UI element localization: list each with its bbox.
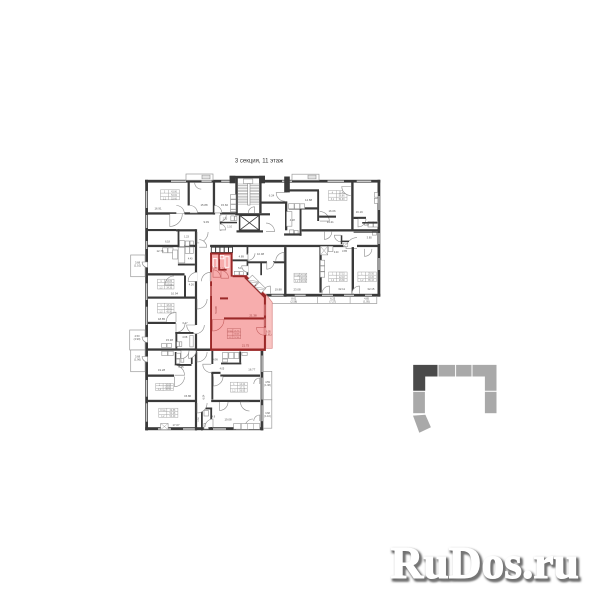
svg-text:53.66: 53.66 [171, 198, 177, 200]
svg-text:14.24: 14.24 [239, 384, 245, 386]
svg-text:4.68: 4.68 [182, 335, 188, 339]
svg-text:18.85: 18.85 [158, 317, 165, 321]
svg-text:(1.96): (1.96) [134, 358, 141, 362]
svg-text:3.80: 3.80 [367, 236, 373, 240]
svg-text:4.9: 4.9 [212, 416, 216, 419]
svg-text:34.36: 34.36 [166, 288, 172, 290]
svg-text:45.90: 45.90 [166, 312, 172, 314]
svg-text:(1.81): (1.81) [265, 333, 271, 336]
svg-text:58.46: 58.46 [234, 334, 240, 336]
svg-text:0.40: 0.40 [334, 251, 339, 254]
svg-text:29.56: 29.56 [368, 274, 374, 276]
svg-text:57.46: 57.46 [234, 337, 240, 339]
svg-text:4.28: 4.28 [290, 218, 296, 222]
svg-text:15.38: 15.38 [166, 338, 173, 342]
svg-text:21.38: 21.38 [249, 314, 257, 318]
svg-text:37.71: 37.71 [239, 387, 245, 389]
svg-text:52.28: 52.28 [170, 413, 176, 415]
svg-text:6.47: 6.47 [182, 321, 188, 325]
svg-text:38.04: 38.04 [300, 278, 306, 280]
svg-text:21.75: 21.75 [234, 330, 240, 332]
svg-text:19.88: 19.88 [275, 288, 282, 292]
svg-text:4.26: 4.26 [189, 283, 195, 287]
svg-text:Студ: Студ [294, 275, 300, 277]
svg-text:15.60: 15.60 [221, 203, 228, 207]
svg-text:43.26: 43.26 [368, 277, 374, 279]
svg-text:32.11: 32.11 [338, 287, 345, 291]
svg-text:16.06: 16.06 [329, 209, 336, 213]
svg-text:(1.10): (1.10) [264, 415, 271, 418]
svg-text:5.07: 5.07 [364, 224, 369, 227]
svg-text:53.49: 53.49 [170, 416, 176, 418]
svg-text:54.68: 54.68 [339, 199, 345, 201]
svg-text:RuDos.ru: RuDos.ru [391, 537, 579, 588]
svg-text:6.04: 6.04 [203, 394, 206, 399]
svg-text:16.19: 16.19 [356, 210, 363, 214]
svg-text:4.89: 4.89 [239, 254, 245, 258]
svg-text:(1.05): (1.05) [363, 301, 370, 304]
svg-text:10.98: 10.98 [257, 252, 264, 256]
svg-text:1.98: 1.98 [212, 266, 217, 269]
svg-text:1.14: 1.14 [220, 268, 225, 271]
svg-text:56.86: 56.86 [339, 196, 345, 198]
svg-text:6.24: 6.24 [269, 194, 275, 198]
svg-text:22.18: 22.18 [339, 277, 345, 279]
svg-text:17.58: 17.58 [166, 284, 172, 286]
svg-text:4.05: 4.05 [220, 368, 225, 371]
svg-text:16.91: 16.91 [155, 207, 162, 211]
svg-text:85.43: 85.43 [368, 280, 374, 282]
svg-text:12.76: 12.76 [157, 249, 164, 253]
svg-text:9.09: 9.09 [203, 220, 209, 224]
svg-text:6.45: 6.45 [178, 365, 184, 369]
svg-text:10.94: 10.94 [171, 292, 178, 296]
svg-text:15.86: 15.86 [184, 394, 191, 398]
svg-text:13.86: 13.86 [166, 281, 172, 283]
svg-text:38.09: 38.09 [300, 281, 306, 283]
svg-text:14.21: 14.21 [327, 220, 334, 224]
svg-text:(1.38): (1.38) [264, 384, 271, 387]
svg-text:53.08: 53.08 [214, 306, 218, 314]
svg-text:21.75: 21.75 [242, 343, 250, 347]
svg-text:53.84: 53.84 [171, 195, 177, 197]
svg-text:19.88: 19.88 [170, 410, 176, 412]
svg-text:3.85: 3.85 [342, 249, 348, 253]
svg-text:Студ: Студ [160, 410, 166, 412]
svg-text:15.88: 15.88 [201, 203, 208, 207]
svg-text:26.80: 26.80 [339, 280, 345, 282]
svg-text:43.86: 43.86 [171, 192, 177, 194]
svg-text:36.50: 36.50 [165, 389, 171, 391]
svg-text:6.18: 6.18 [165, 241, 170, 244]
svg-text:3 секция, 11 этаж: 3 секция, 11 этаж [235, 159, 283, 165]
svg-text:4.99: 4.99 [213, 359, 218, 362]
svg-text:(4.99): (4.99) [134, 337, 141, 341]
svg-text:56.95: 56.95 [239, 391, 245, 393]
svg-text:32.15: 32.15 [367, 287, 374, 291]
svg-text:1.10: 1.10 [227, 226, 232, 229]
svg-text:17.07: 17.07 [173, 423, 180, 427]
svg-text:19.28: 19.28 [158, 368, 165, 372]
svg-text:37.15: 37.15 [339, 274, 345, 276]
svg-text:23.08: 23.08 [294, 288, 301, 292]
svg-text:4.40: 4.40 [188, 258, 193, 261]
svg-text:1.23: 1.23 [184, 236, 189, 239]
svg-text:(2.58): (2.58) [291, 301, 298, 304]
svg-text:(7.27): (7.27) [329, 301, 336, 304]
svg-text:14.88: 14.88 [305, 198, 312, 202]
svg-text:19.08: 19.08 [225, 418, 232, 422]
svg-text:25.08: 25.08 [300, 275, 306, 277]
svg-text:16.77: 16.77 [248, 368, 255, 372]
svg-text:1.23: 1.23 [223, 217, 228, 220]
svg-text:26.00: 26.00 [166, 308, 172, 310]
svg-text:18.20: 18.20 [166, 305, 172, 307]
svg-text:(1.10): (1.10) [134, 264, 141, 268]
